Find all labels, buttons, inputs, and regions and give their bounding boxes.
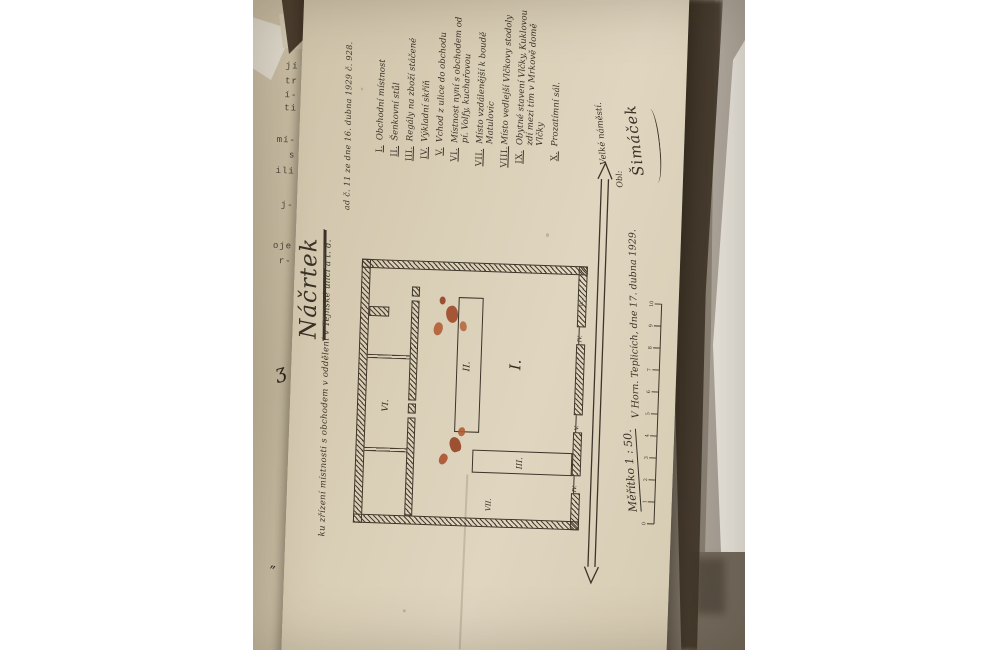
legend-text: Obchodní místnost [375,2,390,140]
legend-text: Místnost nyní s obchodem od pí. Volfy, k… [450,5,475,144]
opening-label-door: V. [574,425,580,430]
legend-item: III.Regály na zboží stáčené [404,0,420,164]
legend-item: IX.Obytné stavení Vlčky, Kuklovou zdí me… [514,0,550,169]
svg-text:9: 9 [648,324,654,327]
legend-item: IV.Výkladní skříň [419,0,435,165]
legend-numeral: VIII. [499,149,510,167]
legend-text: Místo vzdálenější k boudě Matulovic [475,6,500,145]
legend-item: VI.Místnost nyní s obchodem od pí. Volfy… [449,0,475,166]
plan-wall-interior [404,417,415,515]
svg-text:2: 2 [643,478,649,481]
room-label-counter: II. [462,361,472,371]
typed-fragment: í- [253,89,297,101]
wall-stub [369,306,389,317]
door-pier [412,286,420,296]
room-label-bench: III. [515,457,524,469]
legend-text: Obytné stavení Vlčky, Kuklovou zdí mezi … [515,7,550,146]
street-name-note: Velké náměstí. [594,102,609,165]
sheet-title: Náčrtek [296,229,325,341]
legend-item: VIII.Místo vedlejší Vlčkovy stodoly [499,0,515,168]
legend-numeral: IX. [514,150,525,168]
legend-numeral: VI. [449,148,460,166]
legend-numeral: X. [549,151,560,169]
opening-label-window: IV. [577,335,583,342]
legend-item: V.Vchod z ulice do obchodu [434,0,450,165]
photo-of-document: obld-jítrí-timí-silij-ojer- ʒ „ Náčrtek … [253,0,745,650]
plan-wall-top [353,259,371,523]
typed-fragment: r- [253,255,292,267]
legend: I.Obchodní místnost II.Šenkovní stůl III… [374,0,570,170]
svg-text:4: 4 [645,434,651,437]
plan-wall-interior [408,300,419,400]
sketch-sheet: Náčrtek ku zřízení místnosti s obchodem … [279,0,693,650]
opening-label-window: IV. [572,485,578,492]
sketch-sheet-content: Náčrtek ku zřízení místnosti s obchodem … [279,0,688,650]
legend-numeral: II. [389,146,400,164]
paper-speck [546,233,549,237]
paper-speck [361,88,363,91]
signature: Šimáček [621,104,648,177]
typed-fragment: tr [254,75,298,87]
street-double-arrow [580,157,617,590]
typed-fragment: oje [253,240,292,252]
screenshot-canvas: obld-jítrí-timí-silij-ojer- ʒ „ Náčrtek … [0,0,1000,650]
svg-text:7: 7 [647,368,653,371]
plan-wall-street [572,432,583,476]
approval-note: Obl: [615,170,625,187]
legend-text: Výkladní skříň [420,4,435,142]
svg-text:6: 6 [646,390,652,393]
plan-wall-street [570,493,580,530]
legend-item: X.Prozatímní sál. [549,1,565,169]
typed-fragment: ili [253,165,295,177]
room-partition [364,447,406,452]
plan-wall-street [577,266,588,327]
door-pier [408,403,416,413]
scale-bar: 012345678910 [641,298,667,528]
svg-text:3: 3 [644,456,650,459]
legend-text: Vchod z ulice do obchodu [435,4,450,142]
room-label-main: I. [506,359,524,370]
typed-fragment: ti [253,102,297,114]
plan-wall-right [362,259,588,276]
place-date-note: V Horn. Teplicích, dne 17. dubna 1929. [627,229,641,418]
plan-wall-street [574,344,585,415]
legend-text: Prozatímní sál. [550,8,565,146]
legend-numeral: V. [434,147,445,165]
typed-fragment: j- [253,199,294,211]
room-label-note: VII. [484,498,492,511]
legend-numeral: III. [404,146,415,164]
svg-text:1: 1 [642,500,648,503]
legend-numeral: I. [374,145,385,163]
typed-fragment: s [253,149,295,161]
svg-text:8: 8 [648,346,654,349]
svg-text:0: 0 [641,522,647,525]
ink-stain [460,321,467,331]
legend-text: Šenkovní stůl [390,3,405,141]
scale-text: Měřítko 1 : 50. [621,429,642,513]
typed-fragment: mí- [253,134,296,146]
svg-text:5: 5 [645,412,651,415]
legend-text: Regály na zboží stáčené [405,3,420,141]
table-shadow-patch [695,558,725,614]
svg-text:10: 10 [649,301,655,308]
paper-speck [403,609,406,612]
corner-mark: a. [579,301,585,306]
legend-numeral: VII. [474,149,485,167]
pen-mark: ʒ [272,360,288,384]
legend-item: I.Obchodní místnost [374,0,390,163]
legend-text: Místo vedlejší Vlčkovy stodoly [500,6,515,144]
legend-numeral: IV. [419,147,430,165]
floor-plan: I. II. III. VI. VII. IV. V. IV. a. [353,259,588,531]
reference-note: ad č. 11 ze dne 16. dubna 1929 č. 928. [342,41,354,210]
pen-mark: „ [269,558,278,571]
legend-item: II.Šenkovní stůl [389,0,405,164]
legend-item: VII.Místo vzdálenější k boudě Matulovic [474,0,500,167]
room-partition [368,354,410,359]
room-label-strip: VI. [381,399,391,412]
